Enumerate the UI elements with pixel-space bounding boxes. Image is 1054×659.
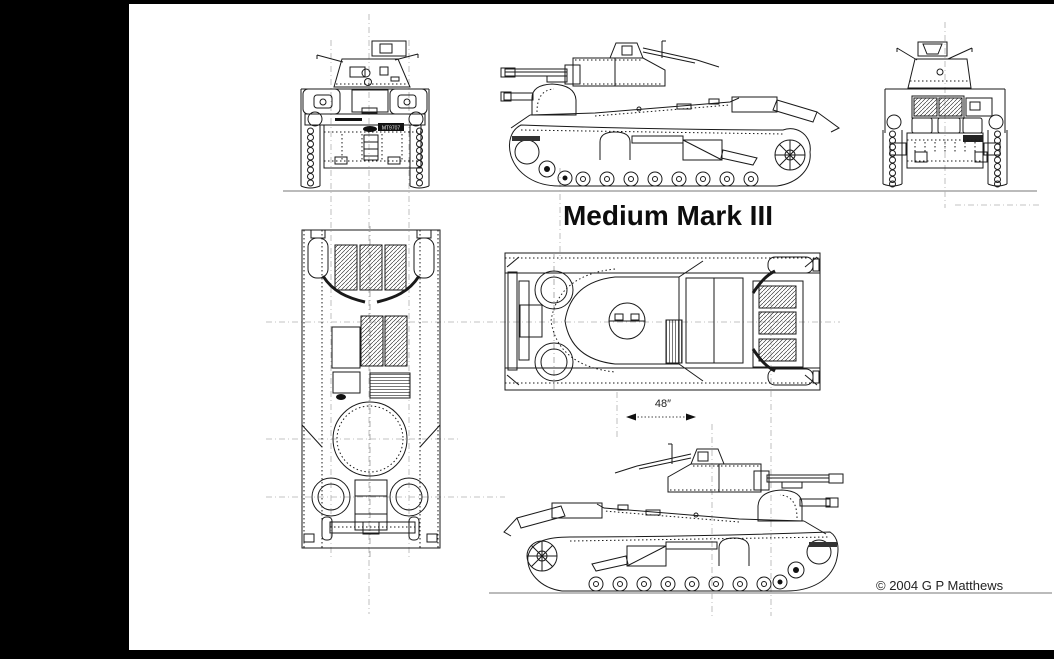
side2-track <box>527 532 838 591</box>
side-mg-turret <box>501 84 576 115</box>
page-title: Medium Mark III <box>540 200 796 232</box>
side2-mg-turret <box>758 490 838 521</box>
rear-tracks <box>883 130 1007 187</box>
side-view-facing-right <box>496 438 862 596</box>
plan-view-front-left <box>503 251 821 391</box>
plan2-engine-deck <box>666 257 819 385</box>
rear-view <box>870 34 1020 192</box>
rear-hull <box>885 89 1005 168</box>
side-main-gun <box>501 65 580 84</box>
side2-main-gun <box>754 471 843 490</box>
front-turret <box>317 41 418 87</box>
side2-turret <box>615 444 761 492</box>
scale-arrow-icon <box>625 411 697 423</box>
side2-hull <box>504 503 826 536</box>
plan-engine-deck <box>308 230 434 400</box>
blueprint-page: MT9707 <box>0 0 1054 659</box>
registration-plate-text: MT9707 <box>382 126 401 132</box>
copyright-note: © 2004 G P Matthews <box>876 578 1003 593</box>
plan2-front-end <box>508 271 573 381</box>
plan-view-front-down <box>293 226 451 558</box>
front-view: MT9707 <box>285 36 445 194</box>
rear-turret <box>897 42 972 88</box>
side-turret <box>573 41 719 86</box>
side-view-facing-left <box>487 40 847 192</box>
scale-label: 48″ <box>625 398 701 410</box>
side-track <box>509 125 810 186</box>
scale-marker: 48″ <box>625 398 701 428</box>
